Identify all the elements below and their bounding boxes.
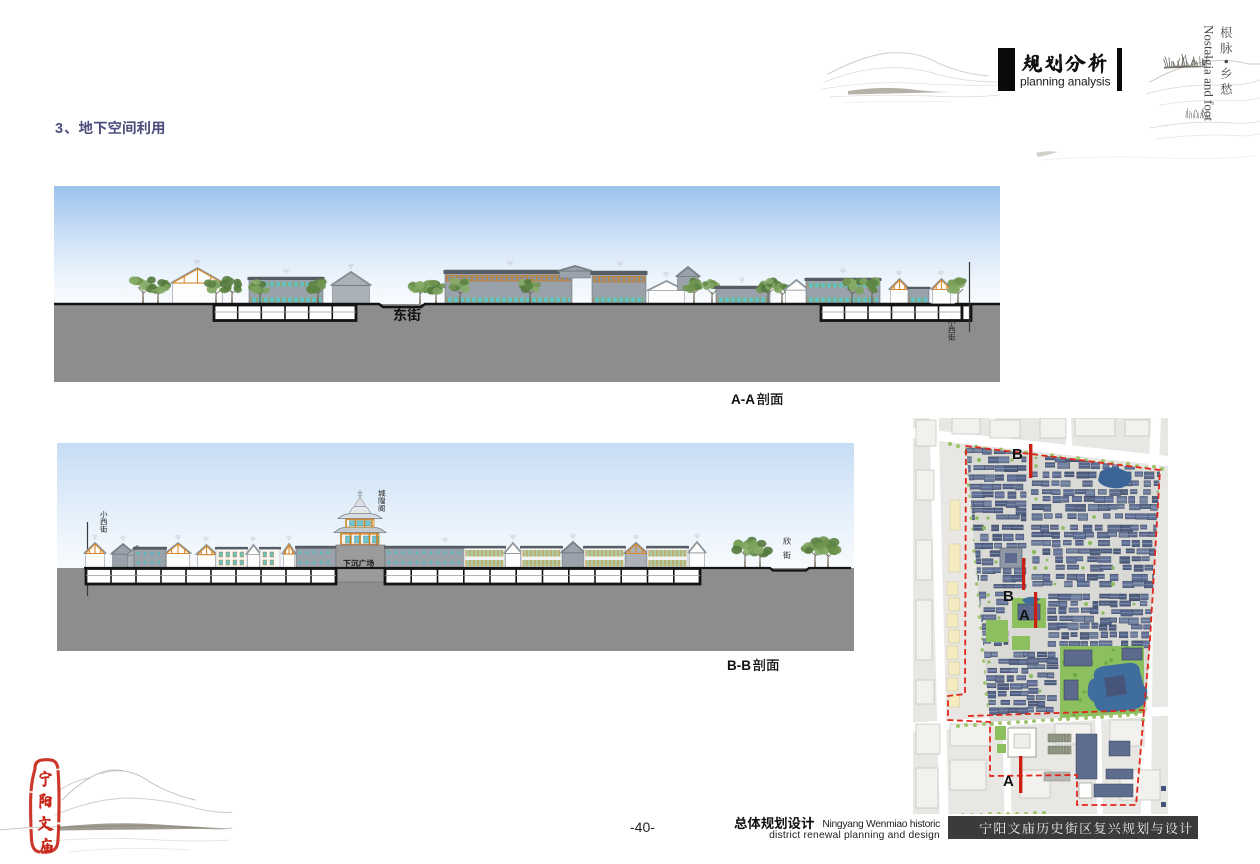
svg-text:A-A: A-A bbox=[731, 392, 755, 407]
svg-text:Ningyang Wenmiao historic: Ningyang Wenmiao historic bbox=[822, 819, 940, 830]
svg-text:A: A bbox=[1003, 773, 1014, 790]
svg-text:A: A bbox=[1019, 607, 1030, 624]
svg-text:B: B bbox=[1012, 446, 1023, 463]
svg-text:district renewal planning a: district renewal planning and design bbox=[769, 830, 940, 841]
svg-text:Nostalgia and foot: Nostalgia and foot bbox=[1202, 25, 1217, 121]
svg-text:B-B: B-B bbox=[727, 658, 751, 673]
svg-text:B: B bbox=[1003, 588, 1014, 605]
svg-text:planning analysis: planning analysis bbox=[1020, 75, 1110, 89]
svg-text:3: 3 bbox=[55, 121, 63, 137]
svg-text:-40-: -40- bbox=[630, 819, 655, 835]
